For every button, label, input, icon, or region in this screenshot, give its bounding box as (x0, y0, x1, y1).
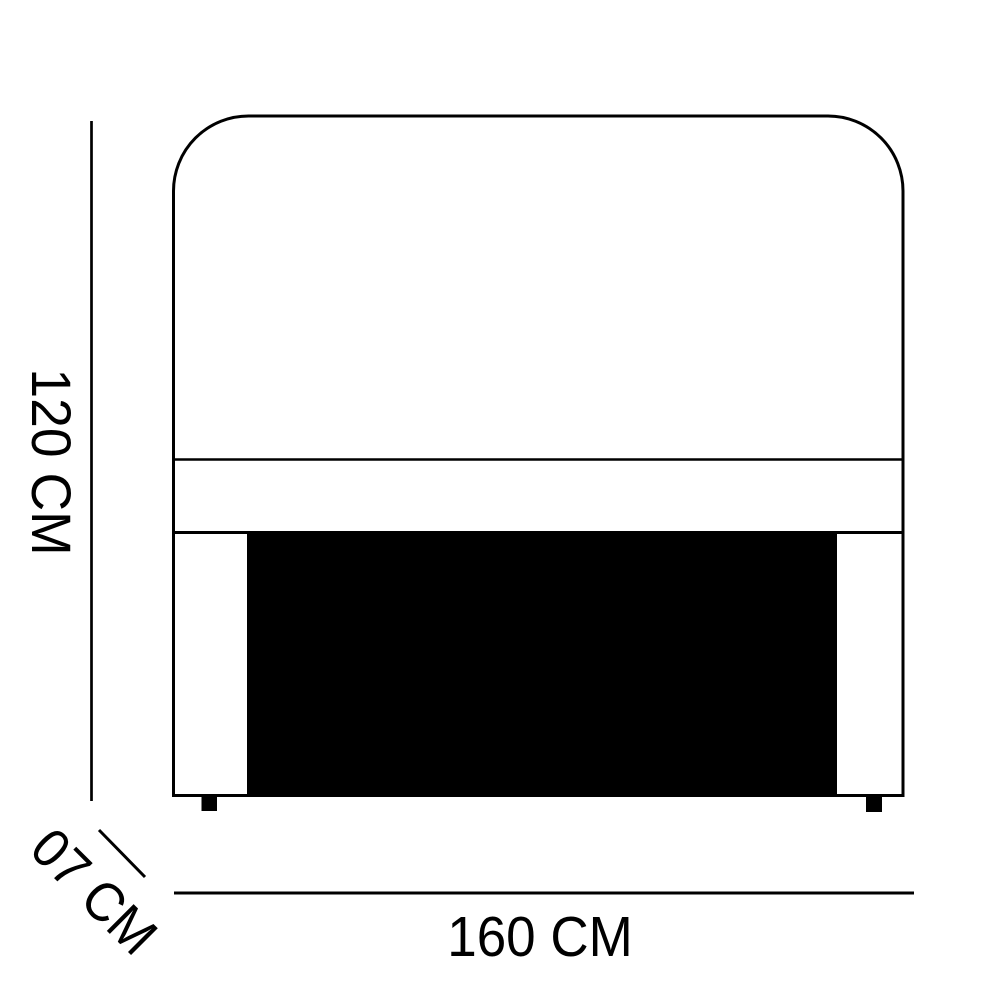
svg-text:120 CM: 120 CM (20, 368, 83, 555)
svg-text:160 CM: 160 CM (447, 904, 633, 968)
